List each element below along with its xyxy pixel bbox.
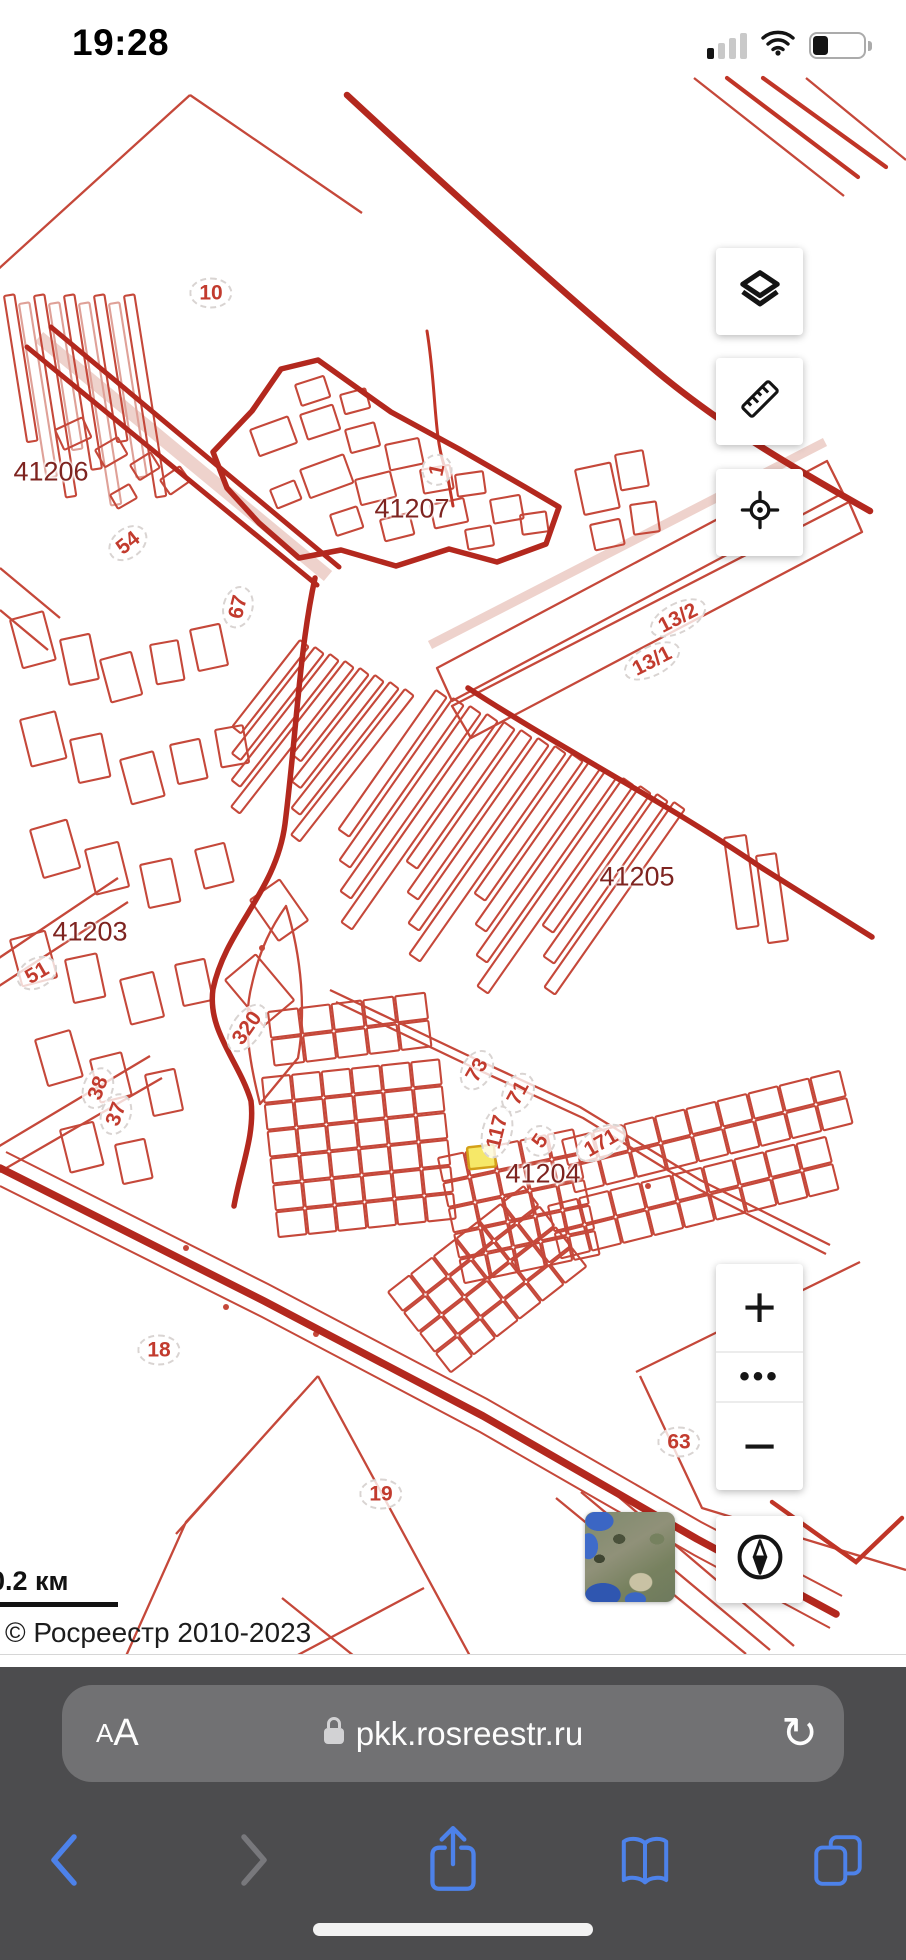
page-separator [0, 1654, 906, 1655]
home-indicator[interactable] [313, 1923, 593, 1936]
compass-button[interactable] [716, 1516, 803, 1603]
status-icons [707, 30, 867, 61]
map-label-41205: 41205 [599, 864, 674, 891]
map-label-18: 18 [137, 1335, 180, 1366]
share-button[interactable] [413, 1815, 493, 1905]
wifi-icon [761, 30, 795, 61]
status-bar: 19:28 [0, 0, 906, 95]
ruler-icon [736, 375, 784, 428]
locate-button[interactable] [716, 469, 803, 556]
measure-button[interactable] [716, 358, 803, 445]
copyright-text: © Росреестр 2010-2023 [5, 1617, 311, 1649]
address-bar[interactable]: AA pkk.rosreestr.ru ↻ [62, 1685, 844, 1782]
bottom-nav [0, 1815, 906, 1915]
map-label-41207: 41207 [374, 496, 449, 523]
iphone-screen: 19:28 [0, 0, 906, 1960]
map-label-63: 63 [657, 1427, 700, 1458]
compass-icon [732, 1529, 788, 1590]
safari-toolbar: AA pkk.rosreestr.ru ↻ [0, 1667, 906, 1960]
map-viewport[interactable]: 10412065414120713/213/167412054120351320… [0, 0, 906, 1655]
zoom-in-button[interactable]: + [716, 1264, 803, 1351]
back-button[interactable] [23, 1815, 103, 1905]
crosshair-icon [738, 488, 782, 537]
basemap-switcher-thumbnail[interactable] [585, 1512, 675, 1602]
zoom-more-button[interactable]: ••• [716, 1353, 803, 1401]
lock-icon [323, 1716, 345, 1751]
map-label-41203: 41203 [52, 919, 127, 946]
scale-bar [0, 1602, 118, 1607]
status-time: 19:28 [72, 22, 169, 64]
layers-icon [737, 267, 783, 316]
forward-button[interactable] [215, 1815, 295, 1905]
map-label-10: 10 [189, 278, 232, 309]
tabs-button[interactable] [798, 1815, 878, 1905]
scale-bar-label: 0.2 км [0, 1566, 69, 1597]
layers-button[interactable] [716, 248, 803, 335]
map-label-19: 19 [359, 1479, 402, 1510]
cellular-signal-icon [707, 32, 748, 59]
reload-button[interactable]: ↻ [781, 1685, 818, 1782]
zoom-controls: + ••• − [716, 1264, 803, 1490]
map-label-41206: 41206 [13, 459, 88, 486]
map-label-41204: 41204 [505, 1161, 580, 1188]
zoom-out-button[interactable]: − [716, 1403, 803, 1490]
url-text: pkk.rosreestr.ru [356, 1715, 583, 1753]
bookmarks-button[interactable] [605, 1815, 685, 1905]
battery-icon [809, 32, 866, 59]
